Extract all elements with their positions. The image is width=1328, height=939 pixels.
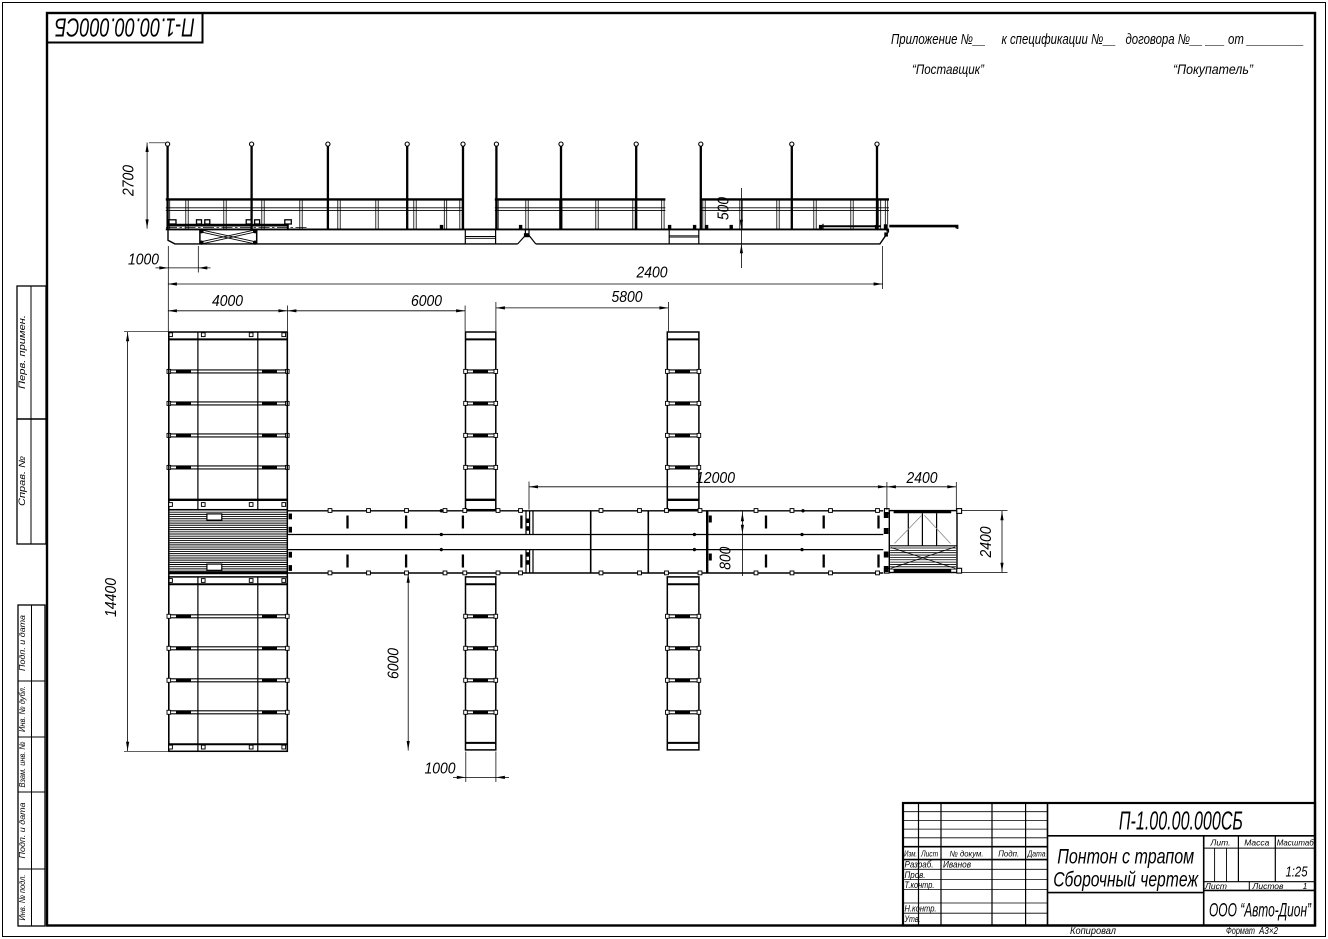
svg-text:1: 1 [1303, 881, 1308, 891]
svg-text:1:25: 1:25 [1286, 865, 1309, 881]
svg-text:2400: 2400 [978, 526, 995, 558]
svg-text:500: 500 [716, 197, 733, 220]
svg-text:Взам. инв. №: Взам. инв. № [17, 742, 27, 788]
svg-text:Понтон с трапом: Понтон с трапом [1057, 846, 1194, 869]
svg-text:ООО “Авто-Дион”: ООО “Авто-Дион” [1209, 901, 1312, 922]
svg-text:Подп.: Подп. [998, 849, 1019, 858]
svg-text:Сборочный чертеж: Сборочный чертеж [1053, 869, 1199, 892]
svg-text:Формат: Формат [1226, 925, 1255, 937]
svg-text:12000: 12000 [696, 470, 735, 487]
svg-text:П-1.00.00.000СБ: П-1.00.00.000СБ [55, 13, 195, 43]
svg-text:Т.контр.: Т.контр. [905, 880, 935, 890]
svg-text:800: 800 [718, 547, 735, 570]
svg-text:Утв.: Утв. [904, 914, 921, 924]
svg-text:1000: 1000 [425, 761, 456, 778]
svg-text:Лист: Лист [920, 849, 938, 858]
svg-text:Изм.: Изм. [904, 849, 917, 858]
svg-text:1000: 1000 [128, 252, 159, 269]
svg-text:Иванов: Иванов [943, 860, 971, 870]
svg-text:Приложение №__ к специфика: Приложение №__ к спецификации №__ догово… [891, 32, 1304, 48]
svg-text:“Поставщик”: “Поставщик” [912, 61, 985, 77]
svg-text:4000: 4000 [212, 293, 243, 310]
svg-text:“Покупатель”: “Покупатель” [1173, 61, 1254, 77]
svg-text:Масштаб: Масштаб [1277, 838, 1315, 848]
svg-text:2700: 2700 [121, 165, 138, 197]
svg-text:Листов: Листов [1252, 881, 1285, 891]
svg-text:Справ. №: Справ. № [17, 456, 27, 506]
svg-text:Подп. и дата: Подп. и дата [17, 802, 27, 858]
svg-text:2400: 2400 [636, 265, 668, 282]
svg-text:14400: 14400 [103, 578, 120, 617]
svg-text:Лист: Лист [1204, 881, 1227, 891]
svg-text:№ докум.: № докум. [950, 849, 984, 858]
svg-text:Н.контр.: Н.контр. [905, 904, 937, 914]
svg-text:А3×2: А3×2 [1258, 925, 1278, 937]
svg-text:6000: 6000 [411, 293, 442, 310]
svg-text:Инв. № дубл.: Инв. № дубл. [17, 686, 27, 732]
svg-text:Перв. примен.: Перв. примен. [17, 315, 27, 389]
svg-text:6000: 6000 [386, 648, 403, 679]
svg-text:Копировал: Копировал [1070, 925, 1116, 937]
svg-text:Лит.: Лит. [1210, 838, 1231, 848]
svg-text:Пров.: Пров. [905, 870, 926, 880]
svg-text:2400: 2400 [906, 470, 938, 487]
svg-text:5800: 5800 [612, 289, 643, 306]
svg-text:П-1.00.00.000СБ: П-1.00.00.000СБ [1119, 806, 1243, 836]
svg-text:Подп. и дата: Подп. и дата [17, 615, 27, 671]
svg-text:Масса: Масса [1244, 838, 1269, 848]
svg-text:Дата: Дата [1027, 849, 1046, 858]
svg-text:Разраб.: Разраб. [905, 860, 934, 870]
svg-text:Инв. № подл.: Инв. № подл. [17, 875, 27, 921]
